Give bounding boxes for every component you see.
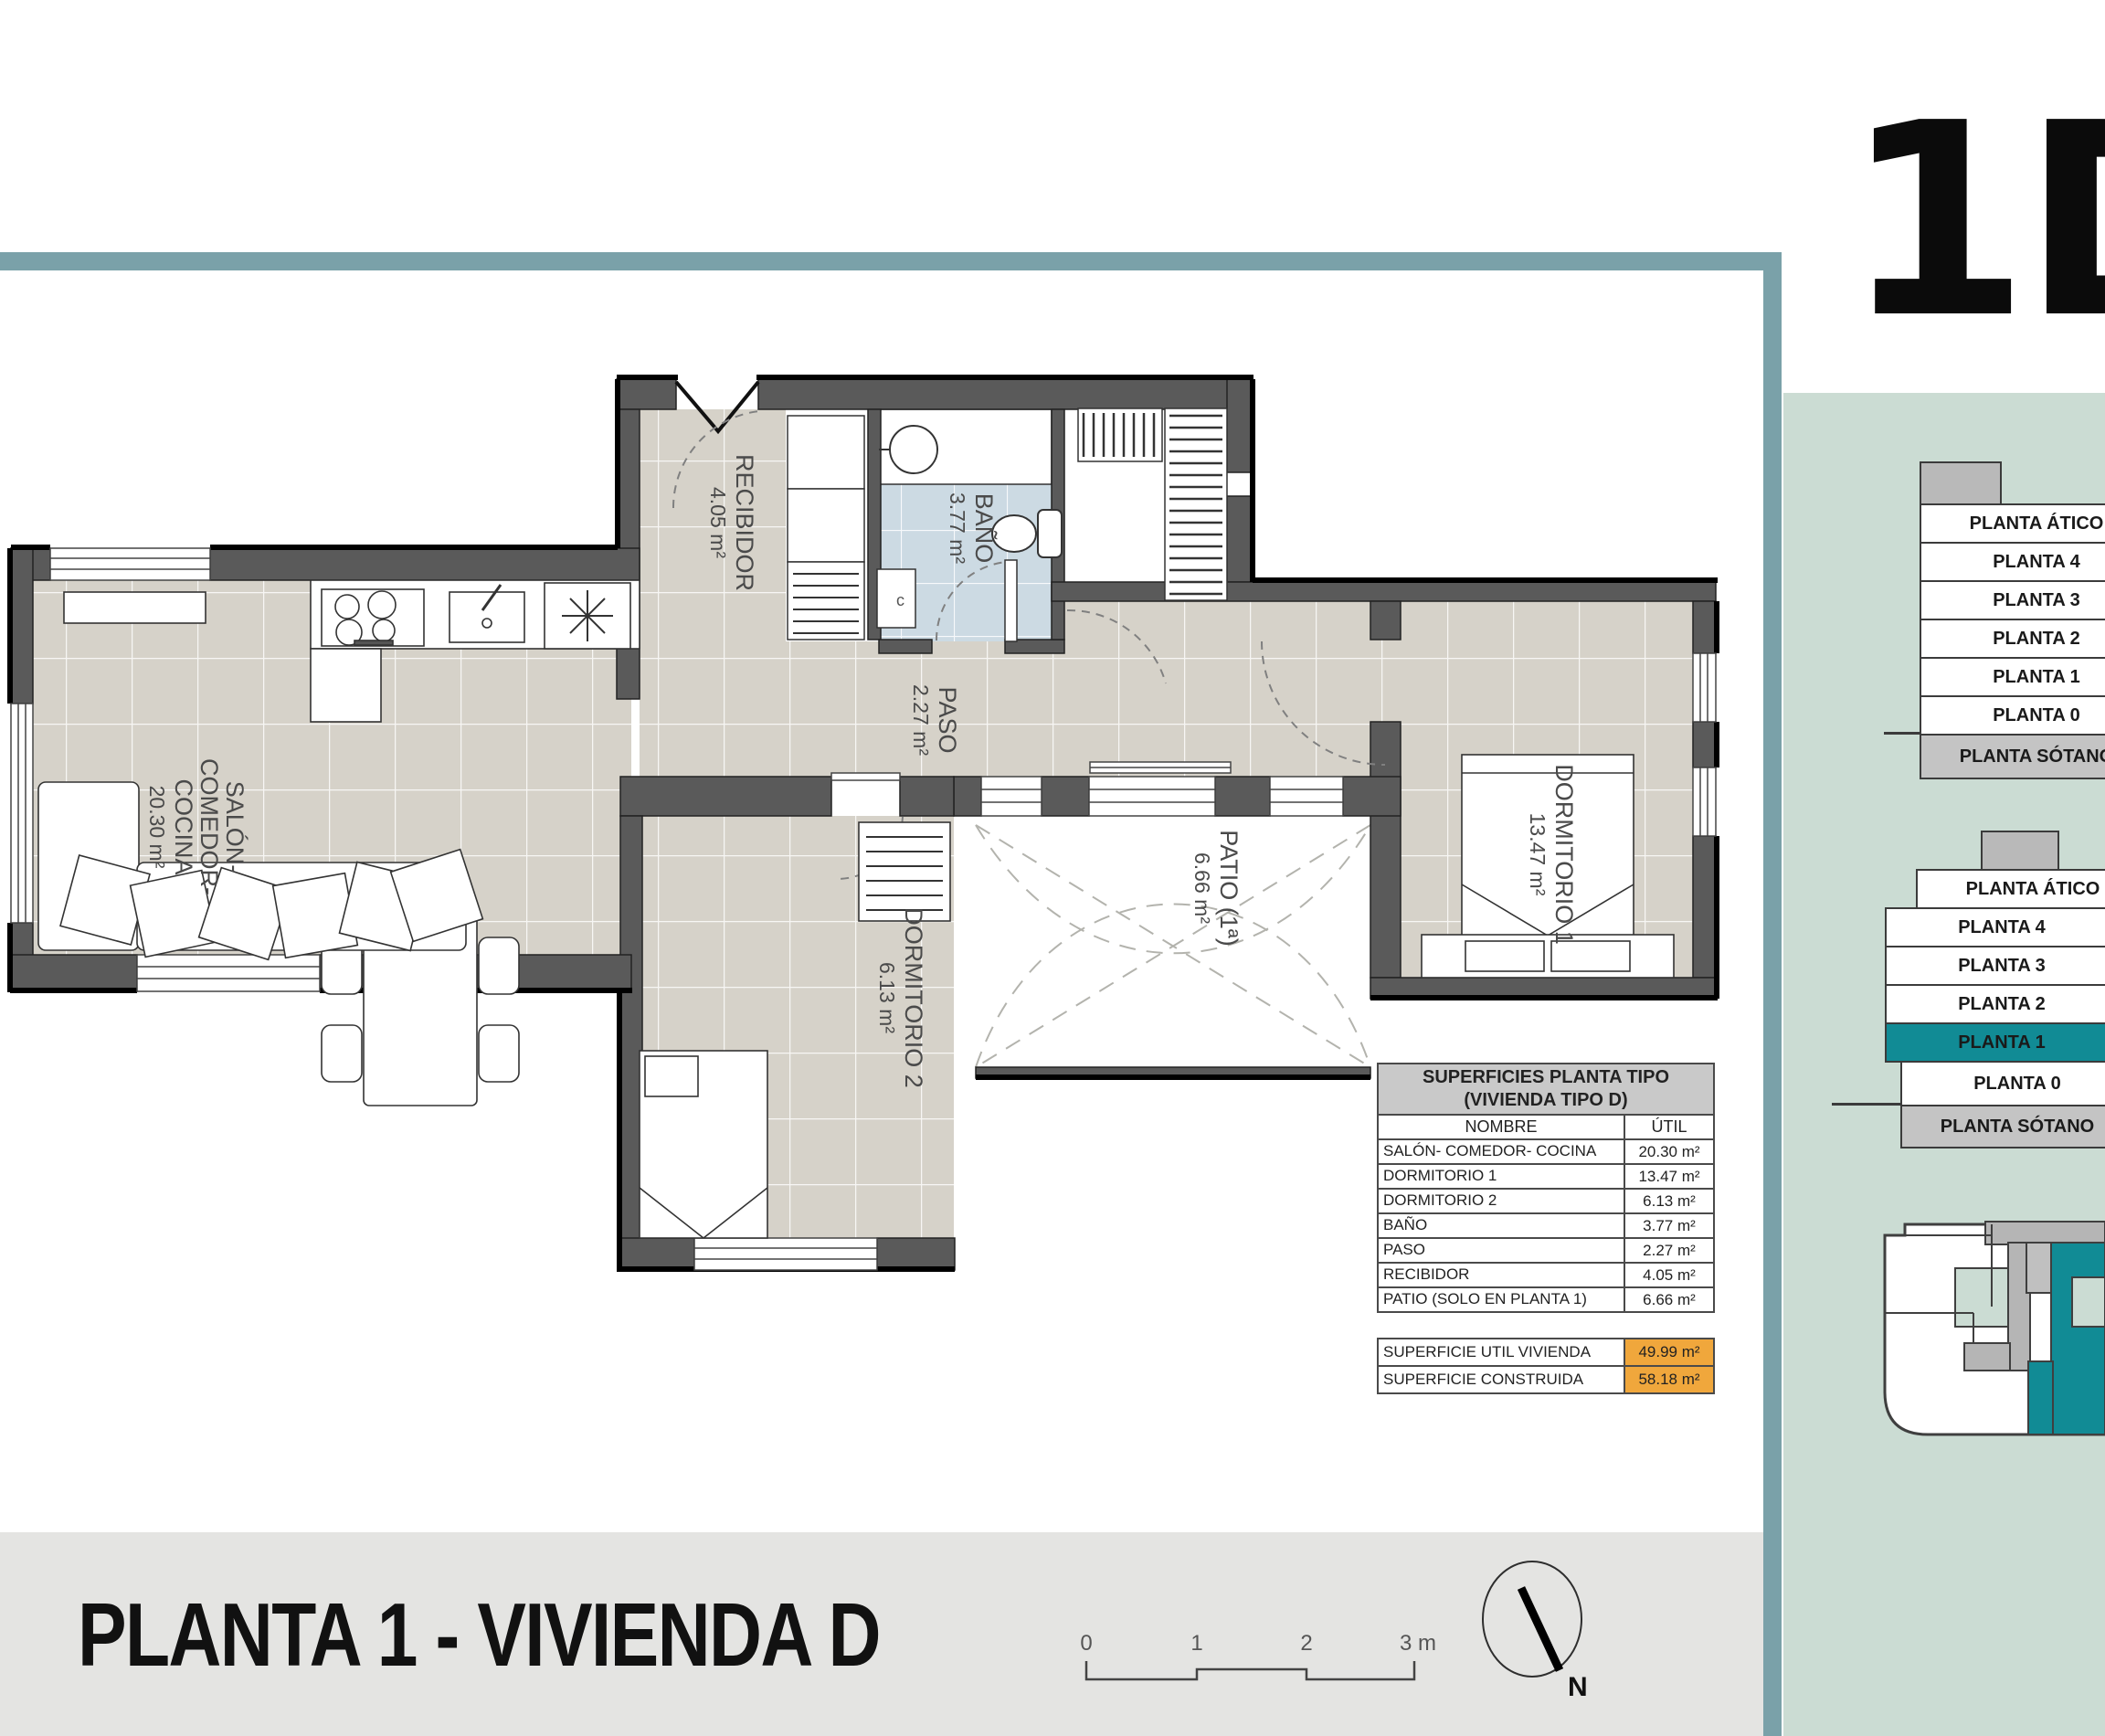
teal-divider-vertical — [1763, 252, 1782, 1736]
stairs-icon — [1078, 408, 1227, 600]
floor-row-planta-0[interactable]: PLANTA 0 — [1900, 1061, 2105, 1106]
svg-text:2.27 m²: 2.27 m² — [909, 684, 933, 756]
table-row: PATIO (SOLO EN PLANTA 1) 6.66 m² — [1377, 1288, 1715, 1313]
svg-text:13.47 m²: 13.47 m² — [1526, 813, 1550, 896]
surfaces-table-header: NOMBRE ÚTIL — [1377, 1116, 1715, 1140]
svg-text:0: 0 — [1080, 1631, 1092, 1656]
svg-text:2: 2 — [1300, 1631, 1312, 1656]
room-bano: BAÑO 3.77 m² — [946, 492, 999, 564]
table-row: RECIBIDOR 4.05 m² — [1377, 1264, 1715, 1288]
total-value-highlight: 58.18 m² — [1624, 1367, 1713, 1392]
sink-icon — [890, 426, 937, 473]
toilet-icon — [992, 515, 1036, 552]
kitchen-peninsula — [311, 649, 381, 722]
col-nombre: NOMBRE — [1379, 1116, 1625, 1138]
svg-text:6.66 m²: 6.66 m² — [1190, 852, 1214, 924]
floor-row-planta-2[interactable]: PLANTA 2 — [1920, 619, 2105, 659]
room-paso: PASO 2.27 m² — [909, 684, 961, 756]
roof-box — [1920, 461, 2002, 509]
floor-row-planta-1-selected[interactable]: PLANTA 1 — [1885, 1022, 2105, 1063]
svg-text:PASO: PASO — [934, 686, 961, 753]
svg-text:20.30 m²: 20.30 m² — [145, 786, 169, 869]
surfaces-table: SUPERFICIES PLANTA TIPO (VIVIENDA TIPO D… — [1377, 1063, 1715, 1394]
floor-row-planta-0[interactable]: PLANTA 0 — [1920, 695, 2105, 736]
svg-text:1: 1 — [1190, 1631, 1202, 1656]
footer-graphics: 0 1 2 3 m N — [1051, 1544, 1635, 1727]
table-row: DORMITORIO 1 13.47 m² — [1377, 1165, 1715, 1190]
hall-closet-icon — [788, 416, 864, 640]
table-row: DORMITORIO 2 6.13 m² — [1377, 1190, 1715, 1214]
svg-text:SALÓN-: SALÓN- — [221, 781, 249, 873]
floor-row-sotano[interactable]: PLANTA SÓTANO — [1920, 734, 2105, 779]
total-value-highlight: 49.99 m² — [1624, 1339, 1713, 1365]
svg-text:PATIO (1ª): PATIO (1ª) — [1215, 830, 1243, 947]
svg-text:3 m: 3 m — [1400, 1631, 1436, 1656]
table-row: SALÓN- COMEDOR- COCINA 20.30 m² — [1377, 1140, 1715, 1165]
floor-row-atico[interactable]: PLANTA ÁTICO — [1916, 869, 2105, 909]
floor-row-planta-4[interactable]: PLANTA 4 — [1885, 907, 2105, 947]
tv-bench — [64, 592, 206, 623]
svg-text:BAÑO: BAÑO — [970, 493, 999, 564]
floor-row-planta-1[interactable]: PLANTA 1 — [1920, 657, 2105, 697]
svg-text:DORMITORIO 1: DORMITORIO 1 — [1550, 764, 1578, 945]
total-row: SUPERFICIE CONSTRUIDA 58.18 m² — [1379, 1365, 1713, 1392]
page: { "unit_label": "1D", "colors": { "accen… — [0, 0, 2105, 1736]
svg-text:N: N — [1568, 1672, 1588, 1702]
roof-box — [1981, 831, 2059, 874]
col-util: ÚTIL — [1625, 1117, 1713, 1137]
north-arrow-icon: N — [1483, 1561, 1588, 1702]
svg-text:4.05 m²: 4.05 m² — [706, 487, 730, 558]
svg-text:RECIBIDOR: RECIBIDOR — [731, 454, 758, 591]
svg-text:COMEDOR-: COMEDOR- — [196, 758, 223, 895]
surfaces-totals: SUPERFICIE UTIL VIVIENDA 49.99 m² SUPERF… — [1377, 1338, 1715, 1394]
surfaces-table-title: SUPERFICIES PLANTA TIPO (VIVIENDA TIPO D… — [1377, 1063, 1715, 1116]
table-row: PASO 2.27 m² — [1377, 1239, 1715, 1264]
sink-counter-icon — [450, 592, 524, 642]
floor-row-planta-4[interactable]: PLANTA 4 — [1920, 542, 2105, 582]
floor-row-sotano[interactable]: PLANTA SÓTANO — [1900, 1105, 2105, 1149]
total-row: SUPERFICIE UTIL VIVIENDA 49.99 m² — [1379, 1339, 1713, 1365]
key-plan — [1864, 1206, 2105, 1453]
svg-text:DORMITORIO 2: DORMITORIO 2 — [900, 907, 927, 1088]
table-row: BAÑO 3.77 m² — [1377, 1214, 1715, 1239]
svg-text:3.77 m²: 3.77 m² — [946, 492, 969, 564]
floor-row-atico[interactable]: PLANTA ÁTICO — [1920, 503, 2105, 544]
floor-row-planta-3[interactable]: PLANTA 3 — [1885, 946, 2105, 986]
sheet-title: PLANTA 1 - VIVIENDA D — [78, 1583, 880, 1687]
bath-cabinet-label: c — [896, 591, 904, 609]
svg-text:COCINA: COCINA — [170, 778, 197, 874]
floor-row-planta-2[interactable]: PLANTA 2 — [1885, 984, 2105, 1024]
bath-door-leaf — [1005, 560, 1017, 641]
ground-line — [1884, 732, 1920, 735]
patio-floor — [976, 816, 1370, 1067]
unit-code-label: 1D — [1844, 88, 2105, 355]
floor-row-planta-3[interactable]: PLANTA 3 — [1920, 580, 2105, 620]
ground-line — [1832, 1103, 1902, 1106]
scale-bar: 0 1 2 3 m — [1080, 1631, 1436, 1679]
svg-text:6.13 m²: 6.13 m² — [875, 962, 899, 1033]
